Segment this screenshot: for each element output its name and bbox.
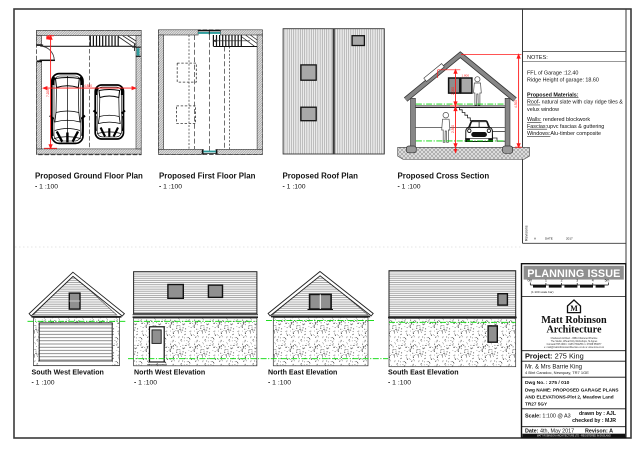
svg-text:- 1 :100: - 1 :100 [283, 184, 306, 191]
svg-text:3: 3 [576, 279, 578, 283]
svg-text:(1:100 scale bar): (1:100 scale bar) [531, 290, 554, 294]
svg-text:Project: 275 King: Project: 275 King [525, 352, 584, 361]
svg-text:DATE: DATE [545, 237, 553, 241]
svg-text:Revison: A: Revison: A [585, 428, 613, 434]
svg-text:- 1 :100: - 1 :100 [35, 184, 58, 191]
svg-text:AND ELEVATIONS-Plot 2, Meadow: AND ELEVATIONS-Plot 2, Meadow Land [525, 395, 614, 400]
svg-text:2017: 2017 [566, 237, 573, 241]
svg-text:velux window: velux window [527, 107, 559, 113]
svg-text:A: A [534, 237, 536, 241]
svg-text:TR27 5GY: TR27 5GY [525, 402, 548, 407]
svg-text:0m: 0m [528, 279, 533, 283]
svg-text:Ridge Height of garage: 18.60: Ridge Height of garage: 18.60 [527, 78, 599, 84]
svg-text:- 1 :100: - 1 :100 [398, 184, 421, 191]
svg-text:4.880: 4.880 [84, 84, 92, 88]
svg-text:2.000: 2.000 [451, 87, 455, 95]
svg-text:Revisions: Revisions [525, 225, 529, 241]
svg-text:4: 4 [592, 279, 594, 283]
svg-text:1.800: 1.800 [462, 74, 470, 78]
svg-text:Windows:Alu-timber composite: Windows:Alu-timber composite [527, 131, 601, 137]
svg-text:Dwg No. : 275 / 010: Dwg No. : 275 / 010 [525, 380, 570, 386]
svg-text:Walls: rendered blockwork: Walls: rendered blockwork [527, 117, 590, 123]
svg-text:Cornwall TR5 0RD t: 01872 55: Cornwall TR5 0RD t: 01872 552255 m: 0796… [547, 343, 603, 346]
svg-text:5m: 5m [605, 279, 610, 283]
svg-text:Proposed Cross Section: Proposed Cross Section [398, 172, 490, 181]
svg-text:M: M [570, 304, 578, 313]
svg-text:- 1 :100: - 1 :100 [268, 380, 291, 387]
svg-text:checked by : MJR: checked by : MJR [572, 418, 616, 424]
svg-text:2: 2 [561, 279, 563, 283]
svg-text:Proposed Roof Plan: Proposed Roof Plan [283, 172, 359, 181]
svg-text:NOTES:: NOTES: [527, 55, 548, 61]
svg-text:4.300: 4.300 [514, 100, 518, 108]
svg-text:MATT ROBINSON ARCHITECTURE LTD: MATT ROBINSON ARCHITECTURE LTD - REGISTE… [537, 434, 611, 437]
svg-text:- 1 :100: - 1 :100 [159, 184, 182, 191]
svg-text:drawn by : AJL: drawn by : AJL [579, 411, 617, 417]
svg-text:- 1 :100: - 1 :100 [134, 380, 157, 387]
svg-text:- 1 :100: - 1 :100 [32, 380, 55, 387]
svg-text:FFL of Garage :12.40: FFL of Garage :12.40 [527, 71, 578, 77]
svg-text:7.200: 7.200 [46, 89, 50, 97]
svg-text:- 1 :100: - 1 :100 [388, 380, 411, 387]
svg-text:Proposed Ground Floor Plan: Proposed Ground Floor Plan [35, 172, 143, 181]
svg-text:Roof- natural slate with clay: Roof- natural slate with clay ridge tile… [527, 100, 623, 106]
svg-text:2.300: 2.300 [451, 125, 455, 133]
svg-text:Scale: 1:100 @ A3: Scale: 1:100 @ A3 [525, 414, 571, 420]
svg-text:Fascias:upvc fascias & gutteri: Fascias:upvc fascias & guttering [527, 124, 604, 130]
svg-text:Chartered Architect - RIBA C: Chartered Architect - RIBA Chartered Pra… [551, 337, 598, 340]
svg-text:4 Bint Caradoc, Newquay, TR7 1: 4 Bint Caradoc, Newquay, TR7 1GE [525, 370, 589, 375]
svg-text:Architecture: Architecture [546, 324, 602, 335]
svg-text:1: 1 [545, 279, 547, 283]
svg-text:Date: 4th, May 2017: Date: 4th, May 2017 [525, 428, 574, 434]
svg-text:North West Elevation: North West Elevation [134, 369, 205, 377]
svg-text:e: matt@mattrobinsonarchitectu: e: matt@mattrobinsonarchitecture.co.uk w… [544, 346, 605, 349]
svg-text:Dwg NAME: PROPOSED GARAGE PL: Dwg NAME: PROPOSED GARAGE PLANS [525, 388, 619, 393]
svg-text:The Studio, Wheal Kitty Worksh: The Studio, Wheal Kitty Workshops, St Ag… [551, 340, 598, 343]
svg-text:North East Elevation: North East Elevation [268, 369, 337, 377]
svg-text:Proposed First Floor Plan: Proposed First Floor Plan [159, 172, 256, 181]
svg-text:South East Elevation: South East Elevation [388, 369, 459, 377]
svg-text:Proposed Materials:: Proposed Materials: [527, 92, 579, 98]
svg-text:South West Elevation: South West Elevation [32, 369, 104, 377]
